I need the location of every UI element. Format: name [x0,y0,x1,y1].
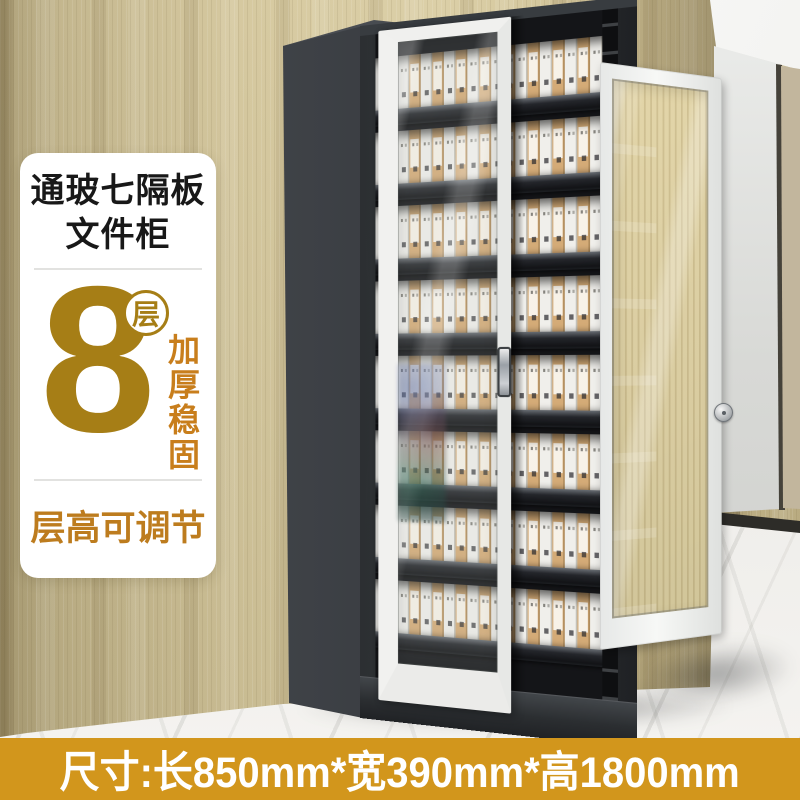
open-door-edge-shadow [511,15,524,692]
door-handle-icon [497,347,511,397]
product-photo-stage: 通玻七隔板 文件柜 8 层 加厚稳固 层高可调节 尺寸:长850mm*宽390m… [0,0,800,800]
open-door-glass [612,79,708,619]
size-banner: 尺寸:长850mm*宽390mm*高1800mm [0,738,800,800]
size-banner-text: 尺寸:长850mm*宽390mm*高1800mm [60,738,740,800]
cabinet-front [360,0,637,749]
lock-knob-icon [714,403,733,422]
card-divider-bottom [34,479,202,481]
tier-unit-badge: 层 [123,290,169,336]
closed-glass-door [378,17,511,714]
closed-door-glass [398,32,498,673]
promo-card: 通玻七隔板 文件柜 8 层 加厚稳固 层高可调节 [20,153,216,578]
glass-reflection [398,364,446,523]
feature-thick-stable: 加厚稳固 [161,333,203,473]
feature-adjustable-height: 层高可调节 [20,500,216,551]
open-glass-door [600,62,722,650]
product-title-line1: 通玻七隔板 [20,169,216,213]
